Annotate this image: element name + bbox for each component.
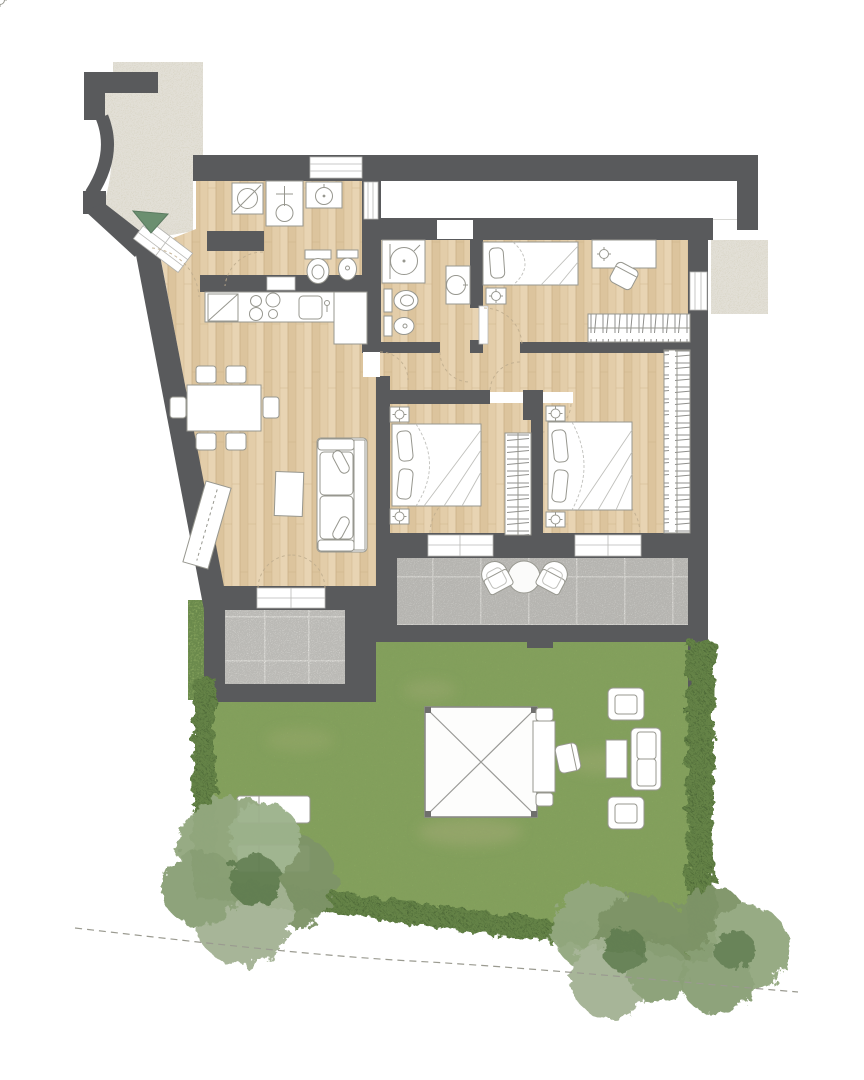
window-bath1 bbox=[310, 157, 362, 178]
lounge-armchair bbox=[608, 688, 644, 720]
fridge-icon bbox=[208, 294, 238, 321]
side-stone-patch bbox=[711, 240, 768, 314]
garden-table bbox=[533, 721, 555, 792]
single-bed bbox=[483, 242, 578, 285]
garden-chair bbox=[536, 793, 553, 806]
toilet-icon bbox=[305, 250, 331, 284]
french-door-living bbox=[257, 588, 325, 608]
dining-chair bbox=[196, 366, 216, 383]
wall-curved bbox=[91, 117, 107, 194]
wall-bed1-north-right bbox=[523, 390, 543, 420]
dining-chair bbox=[226, 366, 246, 383]
wall-top-left-v bbox=[84, 93, 105, 120]
small-terrace bbox=[225, 598, 345, 684]
opening-bed1-door bbox=[490, 392, 523, 403]
wall-bed3-west bbox=[470, 240, 483, 308]
wall-chunk-southeast-living bbox=[345, 586, 378, 642]
door-bed2-terrace bbox=[575, 535, 641, 556]
wardrobe bbox=[588, 314, 690, 342]
tree bbox=[674, 887, 790, 1014]
lounge-armchair bbox=[608, 797, 644, 829]
wall-north-east-return bbox=[737, 181, 758, 230]
double-bed bbox=[392, 424, 481, 506]
shower2-icon bbox=[382, 240, 425, 283]
door-bed1-terrace bbox=[428, 535, 493, 556]
washbasin-icon bbox=[306, 182, 342, 208]
dining-chair bbox=[196, 433, 216, 450]
garden-chair bbox=[536, 708, 553, 721]
floor-plan bbox=[0, 0, 864, 1080]
opening-kitchen-wall bbox=[267, 277, 295, 290]
opening-inner-north bbox=[437, 220, 473, 239]
wall-top-left-h bbox=[84, 72, 158, 93]
wall-small-terrace-east bbox=[345, 642, 376, 702]
bidet2-icon bbox=[384, 316, 414, 336]
opening-living-corridor bbox=[363, 352, 380, 377]
tree bbox=[552, 884, 689, 1018]
dishwasher-unit bbox=[334, 292, 367, 344]
main-terrace bbox=[397, 556, 688, 625]
floor-plan-canvas bbox=[0, 0, 864, 1080]
wall-inner-north bbox=[362, 218, 713, 240]
dining-chair bbox=[226, 433, 246, 450]
door-leaf-bed3 bbox=[479, 306, 488, 344]
window-bed3-east bbox=[690, 272, 707, 310]
dining-chair bbox=[170, 397, 186, 418]
double-bed bbox=[548, 422, 632, 510]
washing-machine-icon bbox=[232, 183, 263, 214]
washbasin2-icon bbox=[446, 266, 470, 304]
wall-south bbox=[376, 533, 708, 558]
wall-bedroom-partition bbox=[531, 418, 543, 538]
window-bath-column bbox=[364, 182, 378, 219]
wardrobe bbox=[664, 350, 690, 533]
wardrobe bbox=[505, 433, 531, 535]
sofa bbox=[317, 438, 367, 552]
wall-bed1-west bbox=[376, 376, 390, 538]
wall-north-boundary bbox=[193, 155, 758, 181]
toilet2-icon bbox=[384, 289, 418, 312]
wall-bed1-north bbox=[388, 390, 490, 404]
lounge-coffee-table bbox=[606, 740, 627, 778]
dining-chair bbox=[263, 397, 279, 418]
gazebo bbox=[425, 707, 537, 817]
shower-icon bbox=[266, 181, 303, 226]
wall-bath2-south bbox=[362, 342, 440, 353]
bidet-icon bbox=[337, 250, 358, 280]
lamp-icon bbox=[0, 0, 7, 7]
wall-terrace-pillar bbox=[527, 629, 553, 648]
opening-bed2-door bbox=[543, 392, 573, 403]
lightwell-gap bbox=[380, 180, 747, 220]
wall-hall-stub bbox=[207, 231, 264, 251]
lounge-sofa bbox=[631, 728, 661, 790]
coffee-table bbox=[274, 472, 304, 517]
dining-table bbox=[187, 385, 261, 431]
terrace-round-table bbox=[508, 561, 540, 593]
terrace-furniture bbox=[477, 557, 572, 596]
